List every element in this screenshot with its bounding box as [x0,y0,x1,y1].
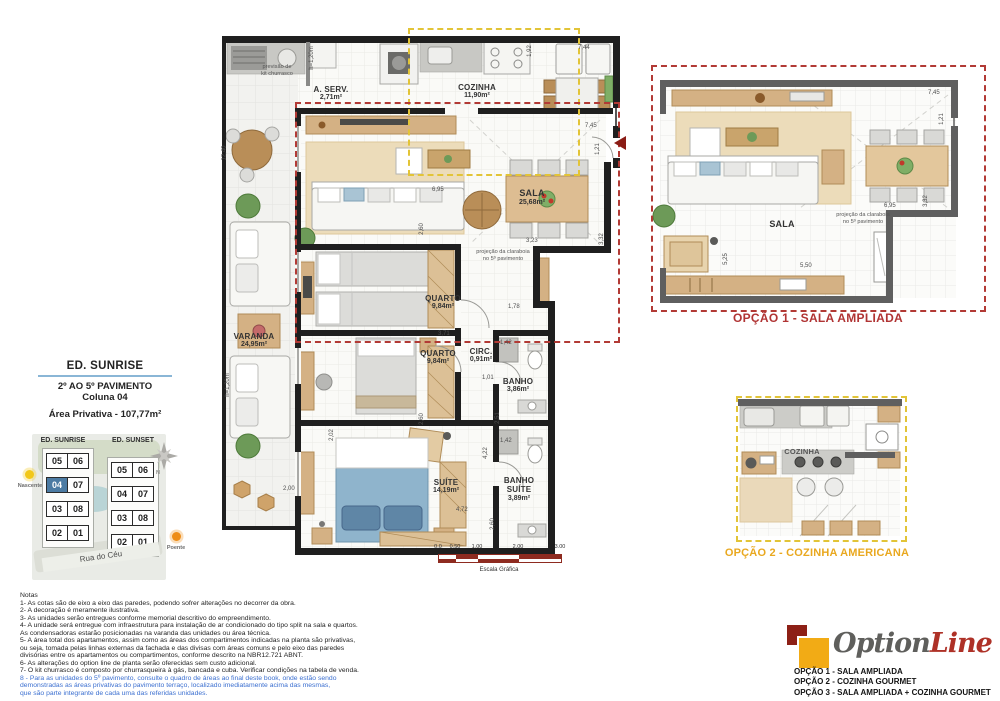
option1-drawing [648,60,988,312]
note-line: 5- A área total dos apartamentos, assim … [20,637,585,645]
dim-parapet-left: h=1,20m [225,373,231,397]
dim-q1-depth: 2,60 [419,223,425,235]
dim-sala-w: 6,95 [432,187,444,193]
room-label-cozinha: COZINHA11,90m² [437,83,517,101]
note-line-blue: demonstradas as áreas privativas do pavi… [20,682,585,690]
unit-cell: 06 [67,453,89,469]
dim-circ-w: 1,01 [482,375,494,381]
dim-top-width: 7,44 [578,45,590,51]
scale-bar-label: Escala Gráfica [438,567,560,573]
dim-suite-w: 4,72 [456,507,468,513]
dim-entry-h: 1,21 [595,143,601,155]
sun-west-label: Poente [154,545,198,551]
note-line: 1- As cotas são de eixo a eixo das pared… [20,600,585,608]
column-label: Coluna 04 [20,392,190,403]
option-list-item: OPÇÃO 3 - SALA AMPLIADA + COZINHA GOURME… [794,688,991,698]
unit-cell: 05 [111,462,133,478]
scale-tick: 0.50 [450,544,461,550]
title-underline [38,375,172,377]
unit-cell: 03 [111,510,133,526]
room-label-circ: CIRC.0,91m² [457,347,505,365]
room-label-banho-suite: BANHO SUÍTE3,89m² [496,476,542,503]
note-line: As condensadoras estarão posicionadas na… [20,630,585,638]
floor-range: 2º AO 5º PAVIMENTO [20,381,190,392]
dim-fridge: 1,92 [527,45,533,57]
scale-tick: 3.00 [555,544,566,550]
sun-west-icon [172,532,181,541]
o1-dim-left-h: 5,25 [723,253,729,265]
option1-room-label: SALA [757,219,807,230]
option1-claraboia: projeção da claraboiano 5º pavimento [824,212,902,225]
dim-suite-left: 2,02 [329,429,335,441]
option2-drawing [733,393,908,545]
room-label-suite: SUÍTE14,19m² [416,478,476,496]
building-title: ED. SUNRISE [20,360,190,372]
unit-cell: 01 [67,525,89,541]
private-area-label: Área Privativa - 107,77m² [20,409,190,420]
sun-east-label: Nascente [8,483,52,489]
scale-tick: 1.00 [472,544,483,550]
unit-cell: 07 [67,477,89,493]
note-line: ou seja, tomada pelas linhas externas da… [20,645,585,653]
dim-hall: 1,78 [508,304,520,310]
annotation-churrasco: previsão dekit churrasco [246,64,308,77]
note-line: divisórias entre os apartamentos ou comp… [20,652,585,660]
o1-dim-bottom-w: 5,50 [800,263,812,269]
dim-banho-w: 1,42 [500,340,512,346]
scale-tick: 2.00 [513,544,524,550]
note-line: 3- As unidades serão entregues conforme … [20,615,585,623]
dim-entry-w: 7,45 [585,123,597,129]
unit-cell: 03 [46,501,68,517]
scale-tick: 0.0 [434,544,442,550]
dim-banho-h: 2,51 [495,412,501,424]
room-label-varanda: VARANDA24,95m² [223,332,285,350]
room-label-aserv: A. SERV.2,71m² [303,85,359,103]
note-line: 2- A decoração é meramente ilustrativa. [20,607,585,615]
logo-yellow-square-icon [797,636,831,670]
option-list-item: OPÇÃO 2 - COZINHA GOURMET [794,677,991,687]
unit-cell: 02 [46,525,68,541]
dim-q2-top: 3,71 [438,331,450,337]
o1-dim-table-h: 3,32 [923,195,929,207]
dim-left-height: 12,40 [222,145,228,160]
o1-dim-entry-h: 1,21 [939,113,945,125]
note-line-blue: que são parte integrante de cada uma das… [20,690,585,698]
entrance-arrow-icon [614,136,626,150]
dim-sala-a: 3,23 [526,238,538,244]
note-line: 7- O kit churrasco é composto por churra… [20,667,585,675]
unit-cell: 08 [67,501,89,517]
unit-cell: 07 [132,486,154,502]
dim-q2-depth: 2,60 [419,413,425,425]
room-label-banho: BANHO3,86m² [494,377,542,395]
option2-title: OPÇÃO 2 - COZINHA AMERICANA [697,547,937,559]
option1-title: OPÇÃO 1 - SALA AMPLIADA [650,311,986,325]
compass-icon [150,442,178,470]
dim-parapet-top: h=1,20m [309,46,315,70]
dim-bsuite-h: 2,60 [490,518,496,530]
unit-cell: 04 [111,486,133,502]
scale-bar-segments [438,554,562,563]
dim-varanda-b: 2,00 [283,486,295,492]
room-label-quarto1: QUARTO9,84m² [413,294,473,312]
dim-bsuite-w: 1,42 [500,438,512,444]
unit-cell: 05 [46,453,68,469]
dim-suite-h: 4,22 [483,447,489,459]
sun-east-icon [25,470,34,479]
scale-bar: 0.0 0.50 1.00 2.00 3.00 Escala Gráfica [430,544,570,578]
o1-dim-table-w: 6,95 [884,203,896,209]
o1-dim-entry-w: 7,45 [928,90,940,96]
dim-sala-b: 3,32 [599,233,605,245]
compass-north-label: N [156,470,160,476]
optionline-logo: OptionLine OPÇÃO 1 - SALA AMPLIADA OPÇÃO… [780,618,995,698]
logo-brand: OptionLine [833,628,992,659]
room-label-sala: SALA25,68m² [500,188,564,207]
note-line-blue: 8 - Para as unidades do 5º pavimento, co… [20,675,585,683]
unit-cell: 08 [132,510,154,526]
keyplan-left-building-label: ED. SUNRISE [28,437,98,444]
notes-title: Notas [20,592,585,600]
floorplan-sheet: A. SERV.2,71m² COZINHA11,90m² SALA25,68m… [0,0,1000,701]
note-line: 4- A unidade será entregue com infraestr… [20,622,585,630]
annotation-claraboia: projeção da claraboiano 5º pavimento [462,249,544,262]
note-line: 6- As alterações do option line de plant… [20,660,585,668]
option2-room-label: COZINHA [772,448,832,457]
option-list: OPÇÃO 1 - SALA AMPLIADA OPÇÃO 2 - COZINH… [794,667,991,698]
keyplan: ED. SUNRISE ED. SUNSET 05 06 04 07 03 08… [4,430,200,582]
option-list-item: OPÇÃO 1 - SALA AMPLIADA [794,667,991,677]
notes-block: Notas 1- As cotas são de eixo a eixo das… [20,592,585,697]
